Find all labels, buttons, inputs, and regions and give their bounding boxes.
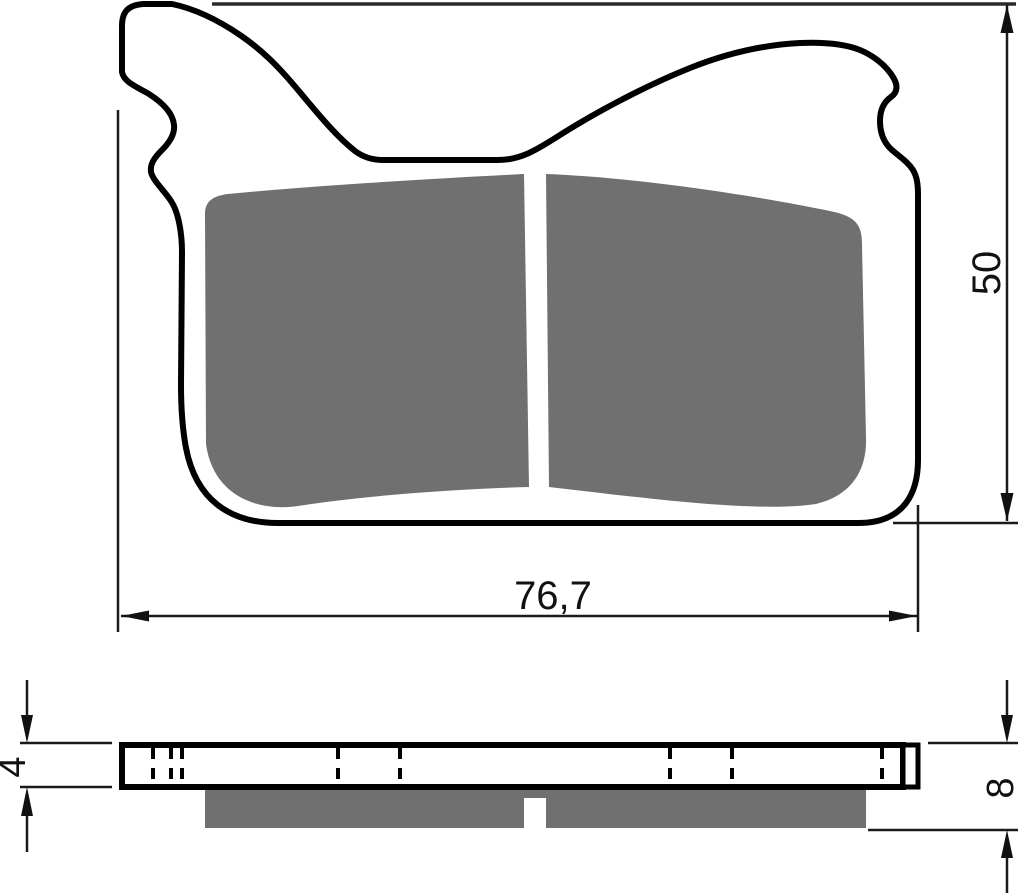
side-view: [122, 745, 918, 828]
arrowhead-down: [1001, 715, 1013, 743]
dimension-label-height: 50: [965, 251, 1009, 296]
arrowhead-up: [1001, 5, 1014, 33]
arrowhead-right: [889, 611, 917, 622]
dimension-plate-thickness: 4: [0, 680, 112, 852]
dimension-label-width: 76,7: [514, 574, 592, 618]
top-view: [122, 4, 918, 523]
dimension-label-plate-thickness: 4: [0, 756, 34, 777]
arrowhead-down: [21, 715, 33, 743]
technical-drawing-page: 76,7 50: [0, 0, 1024, 893]
arrowhead-down: [1001, 493, 1014, 521]
friction-material-right: [546, 174, 866, 507]
arrowhead-left: [121, 611, 149, 622]
side-view-end-tab: [903, 745, 918, 787]
friction-material-left: [205, 174, 529, 507]
arrowhead-up: [21, 787, 33, 816]
dimension-label-total-thickness: 8: [980, 777, 1022, 798]
brake-pad-technical-drawing: 76,7 50: [0, 0, 1024, 893]
arrowhead-up: [1001, 830, 1013, 858]
side-view-backing-plate: [122, 745, 903, 787]
side-view-friction-material: [205, 788, 866, 828]
